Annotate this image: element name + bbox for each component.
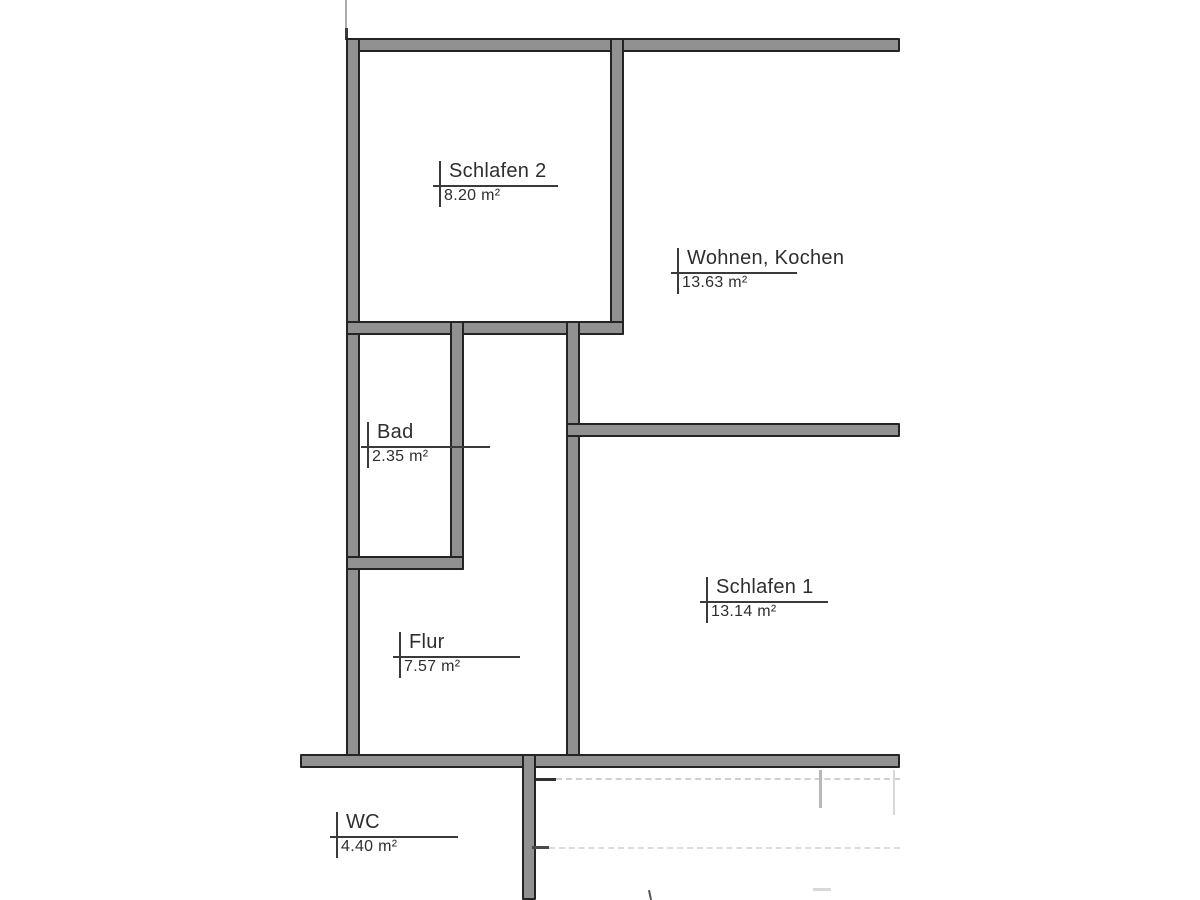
faint-vline-2 bbox=[893, 770, 895, 815]
label-vline bbox=[336, 812, 338, 858]
room-name: Flur bbox=[409, 632, 445, 652]
label-vline bbox=[706, 577, 708, 623]
wall-corridor-right bbox=[566, 321, 580, 768]
room-name: Wohnen, Kochen bbox=[687, 248, 844, 268]
room-label-flur: Flur 7.57 m² bbox=[393, 632, 520, 684]
room-area: 13.63 m² bbox=[682, 275, 748, 291]
wall-bad-bottom bbox=[346, 556, 464, 570]
room-area: 7.57 m² bbox=[404, 659, 460, 675]
room-label-schlafen1: Schlafen 1 13.14 m² bbox=[700, 577, 828, 629]
construction-line-top bbox=[345, 0, 347, 31]
wall-schlafen2-right bbox=[610, 38, 624, 335]
room-name: Bad bbox=[377, 422, 414, 442]
faint-vline-1 bbox=[819, 770, 822, 808]
floorplan-canvas: Schlafen 2 8.20 m² Wohnen, Kochen 13.63 … bbox=[0, 0, 1200, 900]
wall-schlafen2-bottom bbox=[346, 321, 624, 335]
tick-bottom-edge bbox=[648, 890, 652, 900]
room-area: 2.35 m² bbox=[372, 449, 428, 465]
wall-wc-right bbox=[522, 754, 536, 900]
room-name: Schlafen 2 bbox=[449, 161, 547, 181]
room-name: Schlafen 1 bbox=[716, 577, 814, 597]
tick-lower bbox=[532, 846, 549, 849]
room-area: 4.40 m² bbox=[341, 839, 397, 855]
label-vline bbox=[399, 632, 401, 678]
room-label-wc: WC 4.40 m² bbox=[330, 812, 458, 864]
faint-line-lower bbox=[549, 847, 900, 849]
room-name: WC bbox=[346, 812, 380, 832]
label-vline bbox=[439, 161, 441, 207]
wall-bottom bbox=[300, 754, 900, 768]
label-vline bbox=[677, 248, 679, 294]
room-label-schlafen2: Schlafen 2 8.20 m² bbox=[433, 161, 558, 213]
faint-mark-bottom bbox=[813, 888, 831, 891]
faint-line-upper bbox=[556, 778, 900, 780]
label-vline bbox=[367, 422, 369, 468]
room-area: 8.20 m² bbox=[444, 188, 500, 204]
wall-wohnen-schlafen1-divider bbox=[566, 423, 900, 437]
tick-upper bbox=[536, 778, 556, 781]
room-area: 13.14 m² bbox=[711, 604, 777, 620]
wall-left bbox=[346, 38, 360, 768]
room-label-bad: Bad 2.35 m² bbox=[361, 422, 490, 474]
room-label-wohnen-kochen: Wohnen, Kochen 13.63 m² bbox=[671, 248, 797, 300]
